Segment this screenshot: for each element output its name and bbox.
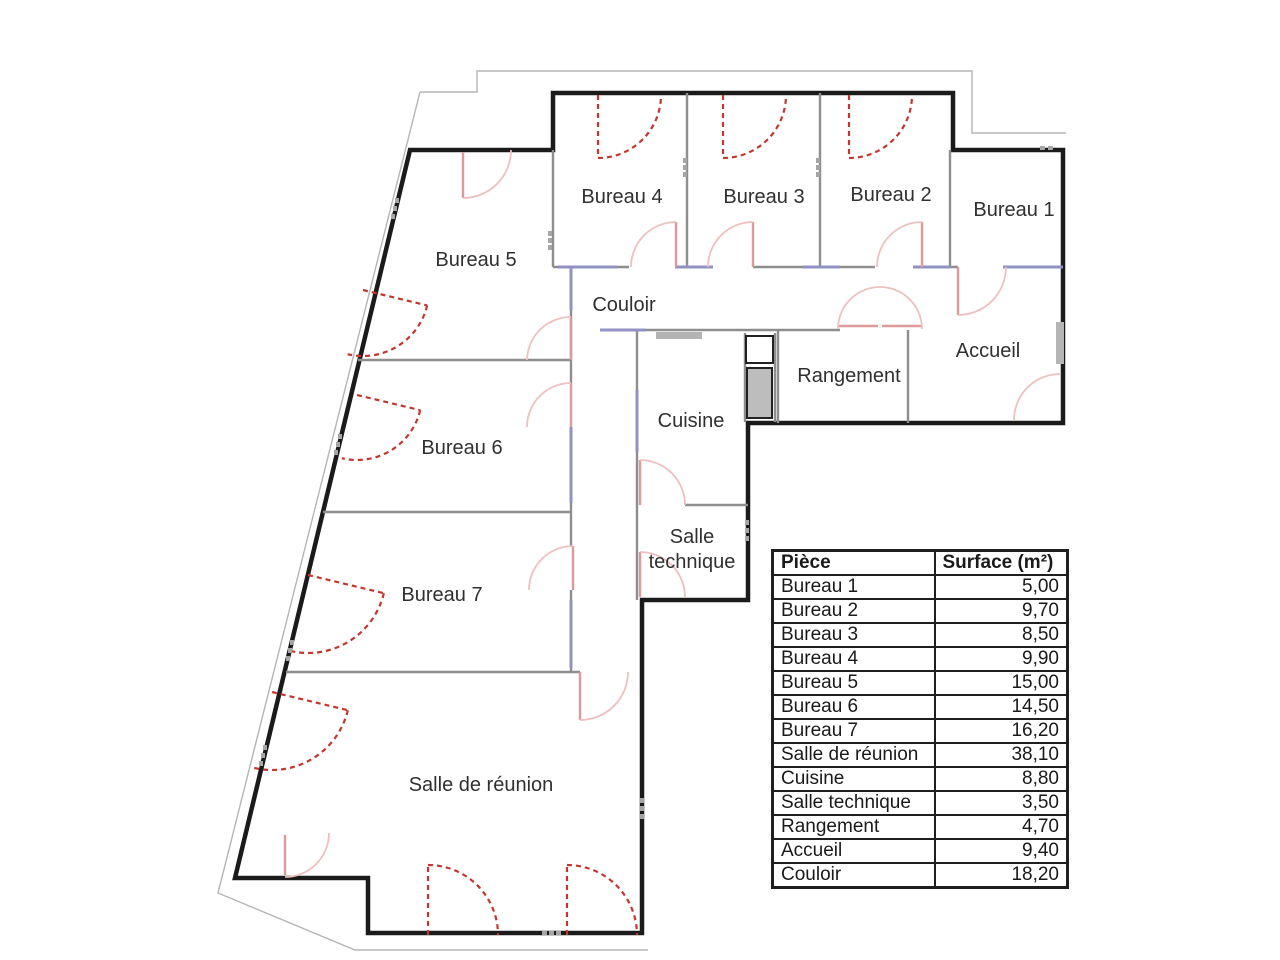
- room-label-bureau-6: Bureau 6: [421, 437, 502, 459]
- piece-cell: Bureau 3: [773, 623, 935, 647]
- surface-cell: 8,50: [935, 623, 1068, 647]
- surface-cell: 16,20: [935, 719, 1068, 743]
- room-label-cuisine: Cuisine: [658, 410, 725, 432]
- window-bureau-6: [342, 395, 420, 473]
- surface-cell: 9,70: [935, 599, 1068, 623]
- surface-cell: 18,20: [935, 863, 1068, 888]
- surface-cell: 5,00: [935, 575, 1068, 599]
- site-boundary-top: [420, 71, 1066, 133]
- surface-cell: 15,00: [935, 671, 1068, 695]
- door-arc-bureau-6: [527, 383, 571, 427]
- door-arc-bureau-7: [529, 546, 573, 590]
- table-header-piece: Pièce: [773, 551, 935, 576]
- piece-cell: Bureau 6: [773, 695, 935, 719]
- room-label-couloir: Couloir: [592, 294, 656, 316]
- room-label-bureau-3: Bureau 3: [723, 186, 804, 208]
- room-label-bureau-5: Bureau 5: [435, 249, 516, 271]
- site-boundary-left: [218, 92, 648, 950]
- room-label-salle-de-reunion: Salle de réunion: [409, 774, 554, 796]
- table-row: Bureau 2 9,70: [773, 599, 1068, 623]
- table-row: Bureau 5 15,00: [773, 671, 1068, 695]
- door-arc-bureau-3: [708, 222, 753, 267]
- shaft-box-white: [746, 336, 773, 363]
- table-row: Bureau 1 5,00: [773, 575, 1068, 599]
- surface-cell: 3,50: [935, 791, 1068, 815]
- piece-cell: Accueil: [773, 839, 935, 863]
- room-label-accueil: Accueil: [956, 340, 1020, 362]
- door-arc-entree-accueil: [1014, 374, 1060, 420]
- room-label-bureau-1: Bureau 1: [973, 199, 1054, 221]
- surface-table-container: Pièce Surface (m²) Bureau 1 5,00 Bureau …: [771, 549, 1066, 889]
- entrance-door-bar: [1056, 322, 1064, 364]
- window-bureau-2: [849, 95, 912, 158]
- table-row: Bureau 4 9,90: [773, 647, 1068, 671]
- floor-plan-svg: Bureau 4 Bureau 3 Bureau 2 Bureau 1 Bure…: [0, 0, 1280, 960]
- room-label-salle-technique-line1: Salle: [670, 526, 714, 548]
- window-salle-reunion-bottom-1: [428, 865, 498, 935]
- table-row: Cuisine 8,80: [773, 767, 1068, 791]
- table-row: Rangement 4,70: [773, 815, 1068, 839]
- door-arc-bureau-1: [958, 267, 1006, 315]
- shaft-box-gray: [747, 368, 772, 418]
- piece-cell: Bureau 7: [773, 719, 935, 743]
- room-label-bureau-4: Bureau 4: [581, 186, 662, 208]
- piece-cell: Cuisine: [773, 767, 935, 791]
- room-label-bureau-2: Bureau 2: [850, 184, 931, 206]
- piece-cell: Salle de réunion: [773, 743, 935, 767]
- piece-cell: Rangement: [773, 815, 935, 839]
- piece-cell: Bureau 5: [773, 671, 935, 695]
- surface-cell: 14,50: [935, 695, 1068, 719]
- room-label-bureau-7: Bureau 7: [401, 584, 482, 606]
- door-arc-bureau-4: [631, 222, 676, 267]
- surface-cell: 4,70: [935, 815, 1068, 839]
- table-row: Salle de réunion 38,10: [773, 743, 1068, 767]
- door-arc-salle-technique-haut: [640, 460, 685, 505]
- surface-cell: 9,90: [935, 647, 1068, 671]
- door-arc-salle-reunion-gauche: [285, 833, 329, 877]
- piece-cell: Bureau 1: [773, 575, 935, 599]
- window-bureau-4: [598, 95, 661, 158]
- door-arc-bureau-5-top: [463, 150, 511, 198]
- surface-cell: 38,10: [935, 743, 1068, 767]
- window-salle-reunion-bottom-2: [567, 865, 637, 935]
- table-header-row: Pièce Surface (m²): [773, 551, 1068, 576]
- table-row: Couloir 18,20: [773, 863, 1068, 888]
- door-arc-salle-reunion: [580, 672, 628, 720]
- room-label-salle-technique-line2: technique: [649, 551, 736, 573]
- piece-cell: Salle technique: [773, 791, 935, 815]
- table-row: Bureau 6 14,50: [773, 695, 1068, 719]
- radiator-bar: [656, 332, 702, 339]
- surface-cell: 8,80: [935, 767, 1068, 791]
- window-bureau-3: [723, 95, 786, 158]
- piece-cell: Couloir: [773, 863, 935, 888]
- room-label-rangement: Rangement: [797, 365, 901, 387]
- table-row: Bureau 7 16,20: [773, 719, 1068, 743]
- piece-cell: Bureau 4: [773, 647, 935, 671]
- surface-cell: 9,40: [935, 839, 1068, 863]
- door-arc-bureau-2: [877, 222, 922, 267]
- door-arc-bureau-5: [527, 317, 571, 360]
- piece-cell: Bureau 2: [773, 599, 935, 623]
- table-row: Accueil 9,40: [773, 839, 1068, 863]
- door-arc-rangement: [838, 287, 922, 329]
- table-row: Salle technique 3,50: [773, 791, 1068, 815]
- table-header-surface: Surface (m²): [935, 551, 1068, 576]
- table-row: Bureau 3 8,50: [773, 623, 1068, 647]
- surface-table: Pièce Surface (m²) Bureau 1 5,00 Bureau …: [771, 549, 1069, 889]
